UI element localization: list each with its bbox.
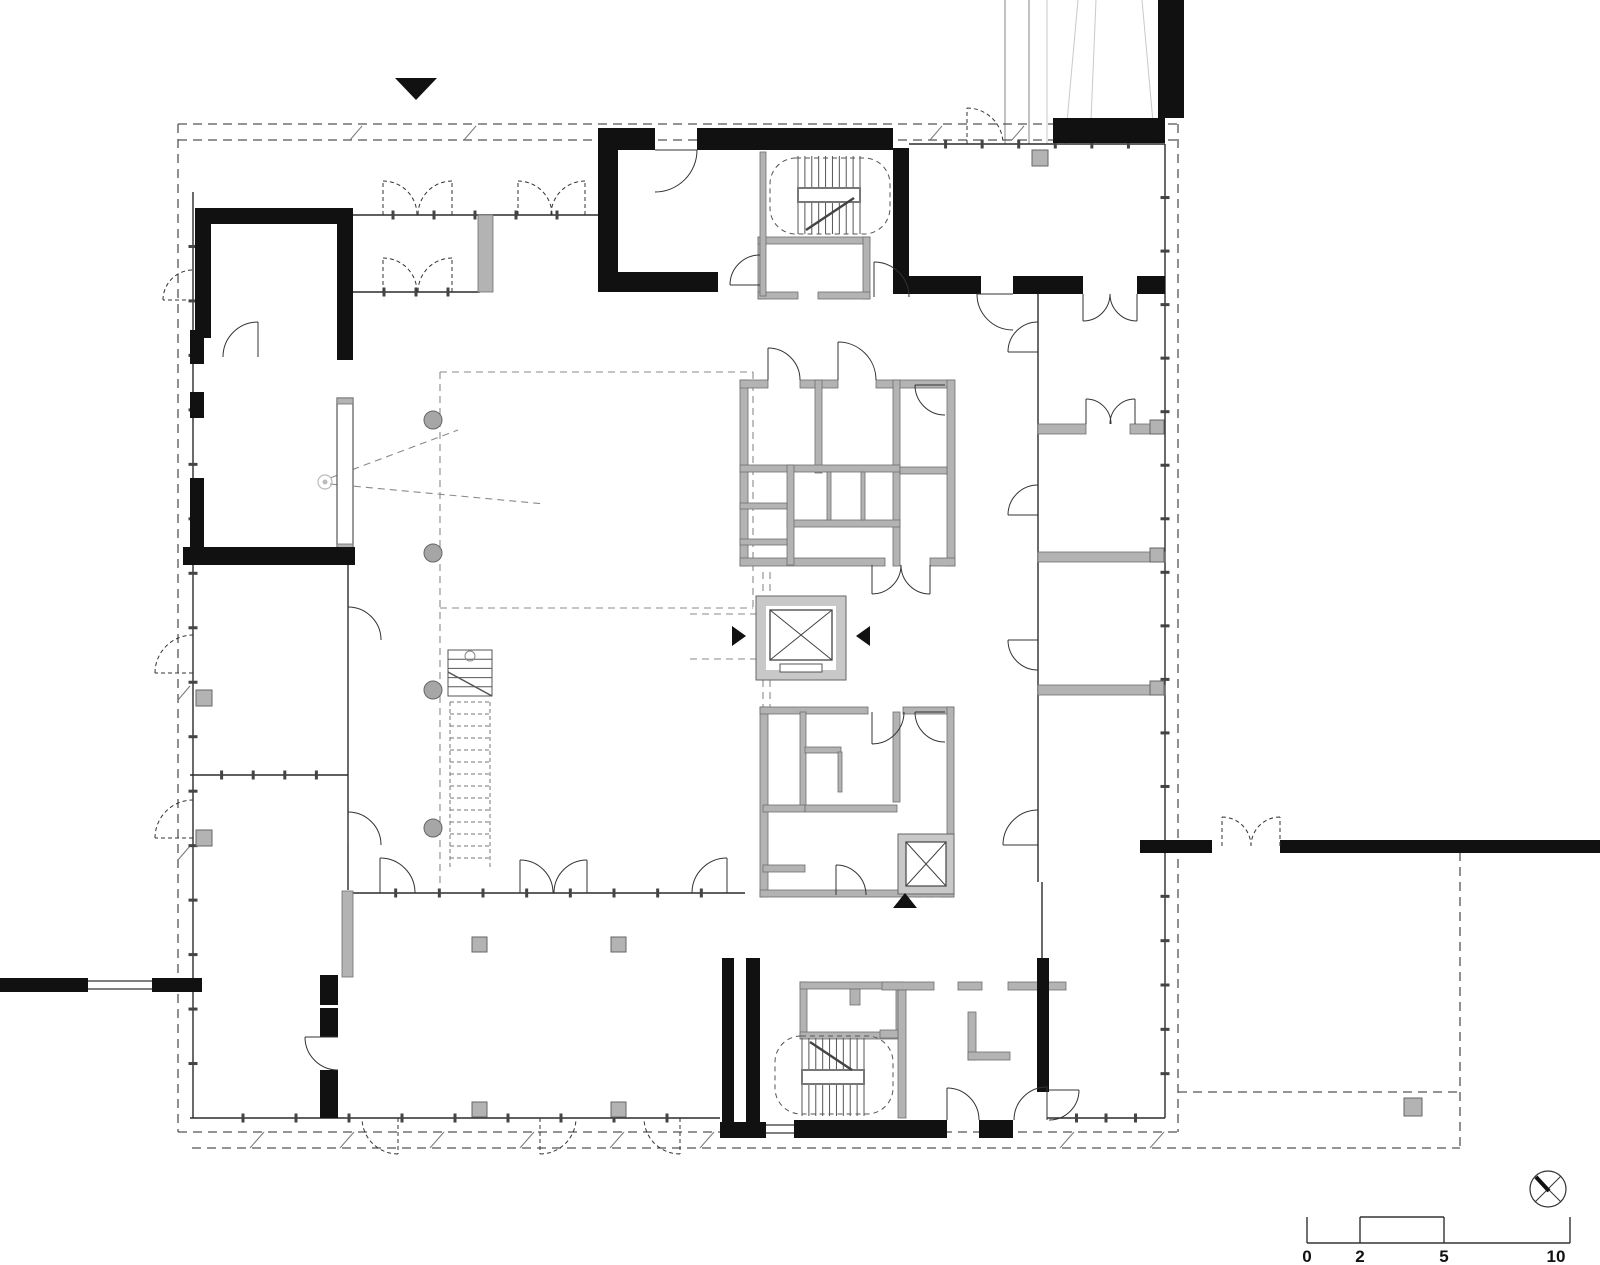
scale-label-0: 0 <box>1302 1247 1311 1265</box>
scale-label-2: 2 <box>1355 1247 1364 1265</box>
scale-label-5: 5 <box>1439 1247 1448 1265</box>
elevator-small <box>898 834 954 894</box>
floor-plan-svg <box>0 0 1600 1265</box>
open-stair <box>448 650 492 868</box>
window-openings <box>88 977 794 1139</box>
black-structural-walls <box>0 0 1600 1138</box>
atrium-void-dashed <box>330 372 947 897</box>
entrance-triangle-top <box>395 78 437 100</box>
scale-bar <box>1307 1217 1570 1243</box>
floor-plan: 0 2 5 10 <box>0 0 1600 1265</box>
white-piers <box>337 398 353 550</box>
round-columns <box>424 411 442 837</box>
north-symbol <box>1530 1171 1566 1207</box>
elevator-main <box>756 596 846 680</box>
section-arrow-left <box>732 626 746 646</box>
scale-label-10: 10 <box>1547 1247 1566 1265</box>
section-arrow-right <box>856 626 870 646</box>
view-point-symbol <box>318 475 332 489</box>
